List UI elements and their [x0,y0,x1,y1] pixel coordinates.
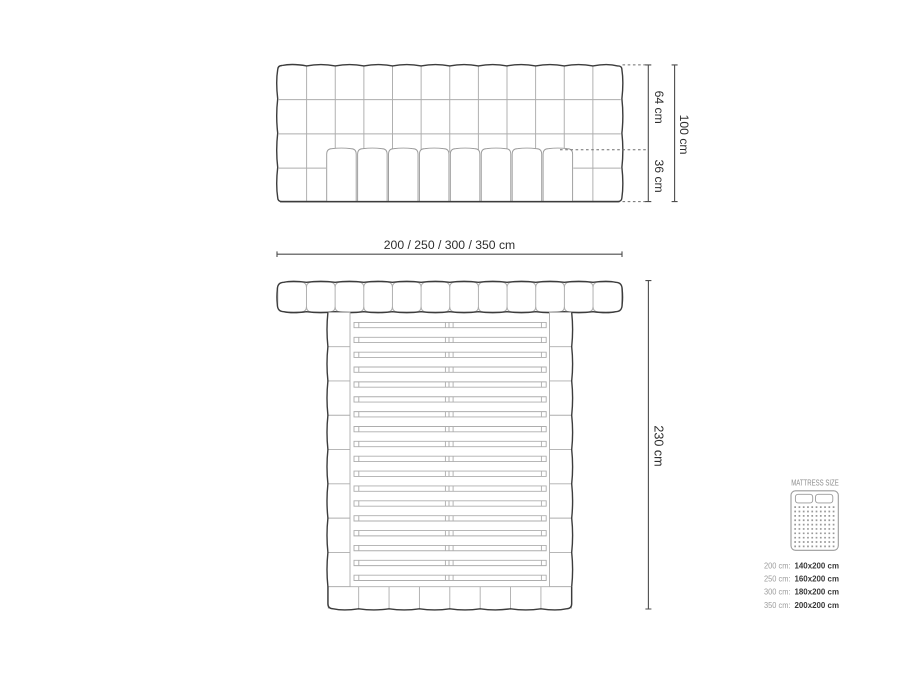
svg-text:230 cm: 230 cm [652,425,666,466]
svg-text:300 cm:: 300 cm: [764,587,791,597]
svg-text:200 cm:: 200 cm: [764,560,791,570]
svg-text:180x200 cm: 180x200 cm [795,587,840,597]
svg-text:200 / 250 / 300 / 350 cm: 200 / 250 / 300 / 350 cm [384,238,515,252]
svg-text:64 cm: 64 cm [652,91,666,124]
svg-text:200x200 cm: 200x200 cm [795,600,840,610]
svg-text:140x200 cm: 140x200 cm [795,560,840,570]
svg-text:250 cm:: 250 cm: [764,574,791,584]
svg-text:MATTRESS SIZE: MATTRESS SIZE [791,479,839,488]
svg-text:160x200 cm: 160x200 cm [795,574,840,584]
svg-text:100 cm: 100 cm [677,115,691,155]
svg-text:36 cm: 36 cm [652,159,666,192]
svg-text:350 cm:: 350 cm: [764,600,791,610]
